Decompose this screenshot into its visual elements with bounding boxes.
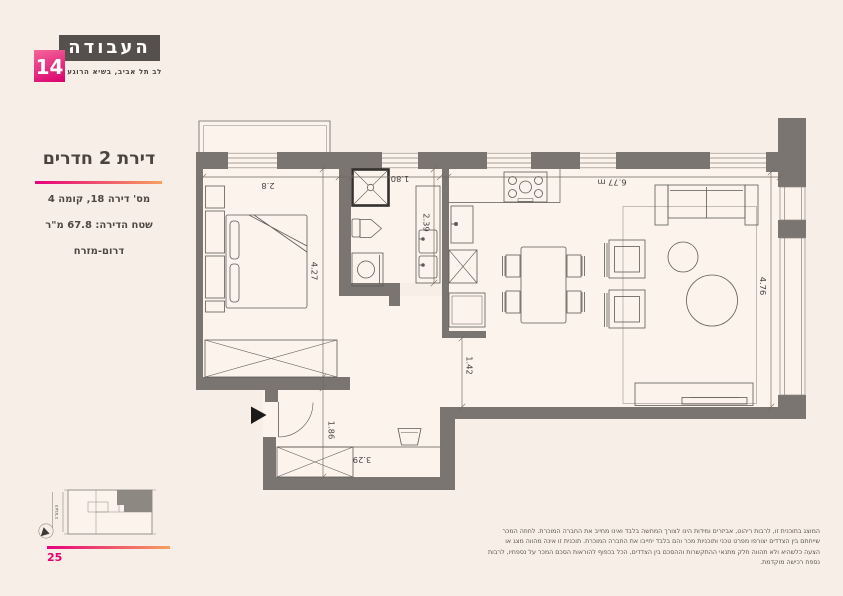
footer-accent-line [47,546,170,549]
apartment-area-line: שטח הדירה: 67.8 מ"ר [28,220,170,231]
dim-bedroom-length: 4.27 [310,262,320,280]
apartment-number-line: מס' דירה 18, קומה 4 [28,194,170,205]
street-label: העבודה [55,504,60,519]
dim-bedroom-width: 2.8 [261,181,274,191]
dim-entry-width: 3.29 [353,455,371,465]
dim-bathroom-width: 1.80 [391,174,409,184]
dim-living-length: 4.76 [758,277,768,295]
floor-plan: 2.8 1.80 6.77 m 3.29 4.27 1.86 2.39 1.42… [190,103,815,513]
dim-bathroom-length: 2.39 [422,213,432,231]
project-tagline: לב תל אביב, בשיא הרוגע [58,68,162,76]
apartment-type-title: דירת 2 חדרים [28,149,170,169]
disclaimer-line: הצעה כלשהיא ולא תהווה חלק מתנאי ההתקשרות… [484,548,820,558]
page-number: 25 [47,551,62,564]
dim-passage-width: 1.42 [465,356,475,374]
dim-living-width: 6.77 m [597,178,626,188]
building-number-badge: 14 [34,50,65,82]
brochure-page: העבודה 14 לב תל אביב, בשיא הרוגע דירת 2 … [0,0,843,596]
accent-divider [35,181,162,184]
apartment-orientation-line: דרום-מזרח [28,246,170,257]
project-logo: העבודה [59,35,160,61]
site-plan: העבודה [28,484,168,546]
legal-disclaimer: המוצג בתוכנית זו, לרבות ריהוט, אביזרים ו… [484,527,820,569]
dim-entry-length: 1.86 [327,421,337,439]
disclaimer-line: המוצג בתוכנית זו, לרבות ריהוט, אביזרים ו… [484,527,820,537]
disclaimer-line: שייחתם בין הצדדים יצורפו מפרט טכני ותוכנ… [484,537,820,547]
disclaimer-line: נספח רכישה מוקדמת. [484,558,820,568]
